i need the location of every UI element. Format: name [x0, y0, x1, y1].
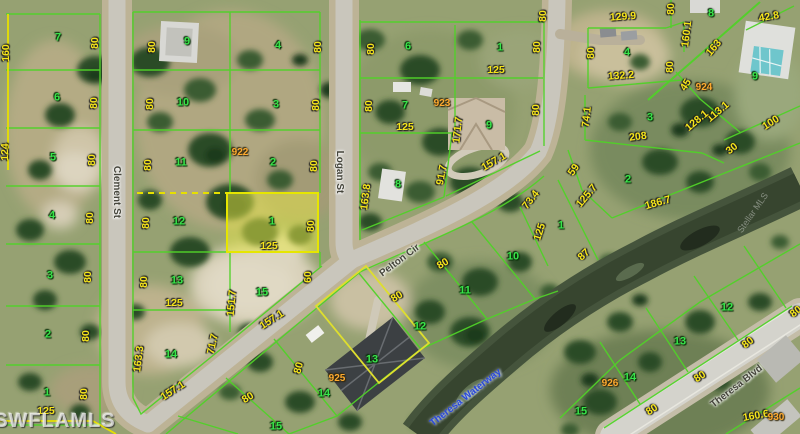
lot-number: 9 — [486, 121, 492, 132]
dimension-label: 91.7 — [435, 164, 449, 186]
lot-number: 4 — [49, 211, 55, 222]
dimension-label: 163.8 — [359, 183, 373, 210]
dimension-label: 59 — [566, 162, 581, 178]
dimension-label: 45 — [678, 77, 693, 92]
dimension-label: 42.8 — [758, 10, 780, 24]
parcel-id: 926 — [602, 379, 619, 389]
dimension-label: 30 — [724, 141, 740, 156]
dimension-label: 80 — [309, 160, 320, 172]
parcel-id: 923 — [434, 99, 451, 109]
lot-number: 3 — [647, 113, 653, 124]
dimension-label: 73.4 — [521, 189, 542, 212]
dimension-label: 80 — [147, 41, 158, 53]
lot-number: 15 — [575, 407, 587, 418]
lot-number: 12 — [414, 322, 426, 333]
lot-number: 1 — [558, 221, 564, 232]
dimension-label: 157.1 — [480, 151, 508, 173]
dimension-label: 80 — [85, 212, 96, 224]
dimension-label: 80 — [366, 43, 377, 55]
dimension-label: 80 — [364, 100, 375, 112]
dimension-label: 160.6 — [742, 409, 770, 424]
dimension-label: 151.7 — [226, 289, 239, 316]
lot-number: 2 — [45, 330, 51, 341]
lot-number: 6 — [54, 93, 60, 104]
lot-number: 9 — [184, 37, 190, 48]
parcel-id: 930 — [768, 413, 785, 423]
dimension-label: 74.1 — [581, 106, 594, 127]
lot-number: 1 — [269, 217, 275, 228]
dimension-label: 80 — [788, 304, 800, 319]
lot-number: 9 — [752, 72, 758, 83]
mls-parcel-map: 160124125808080808080808080808080125163.… — [0, 0, 800, 434]
lot-number: 13 — [674, 337, 686, 348]
dimension-label: 208 — [629, 131, 648, 144]
lot-number: 5 — [50, 153, 56, 164]
dimension-label: 125 — [396, 122, 414, 133]
dimension-label: 80 — [692, 369, 708, 384]
lot-number: 1 — [44, 388, 50, 399]
lot-number: 13 — [366, 355, 378, 366]
lot-number: 14 — [318, 389, 330, 400]
lot-number: 12 — [721, 303, 733, 314]
dimension-label: 125 — [260, 241, 278, 252]
dimension-label: 160.1 — [680, 20, 694, 47]
street-label: Theresa Waterway — [428, 367, 503, 429]
dimension-label: 80 — [90, 37, 101, 49]
dimension-label: 80 — [531, 104, 542, 116]
street-label: Theresa Blvd — [709, 364, 765, 411]
parcel-id: 925 — [329, 374, 346, 384]
dimension-label: 80 — [532, 41, 543, 53]
dimension-label: 157.1 — [159, 379, 187, 402]
lot-number: 14 — [165, 350, 177, 361]
lot-number: 3 — [47, 271, 53, 282]
lot-number: 13 — [171, 276, 183, 287]
lot-number: 7 — [55, 33, 61, 44]
lot-number: 2 — [625, 175, 631, 186]
map-label-layer: 160124125808080808080808080808080125163.… — [0, 0, 800, 434]
dimension-label: 125 — [487, 65, 505, 76]
lot-number: 4 — [624, 48, 630, 59]
dimension-label: 80 — [666, 3, 677, 15]
street-label: Logan St — [334, 151, 344, 194]
dimension-label: 157.1 — [258, 308, 286, 331]
lot-number: 14 — [624, 373, 636, 384]
dimension-label: 128.1 — [684, 109, 711, 134]
watermark: Stellar MLS — [736, 191, 770, 234]
dimension-label: 80 — [538, 10, 549, 22]
dimension-label: 163.3 — [132, 345, 146, 372]
dimension-label: 100 — [761, 114, 781, 132]
parcel-id: 924 — [696, 83, 713, 93]
dimension-label: 160 — [1, 44, 12, 62]
lot-number: 1 — [497, 43, 503, 54]
dimension-label: 80 — [83, 271, 94, 283]
dimension-label: 80 — [665, 61, 676, 73]
dimension-label: 80 — [586, 47, 597, 59]
dimension-label: 80 — [87, 154, 98, 166]
lot-number: 2 — [270, 158, 276, 169]
dimension-label: 80 — [644, 402, 660, 417]
dimension-label: 80 — [79, 388, 90, 400]
lot-number: 6 — [405, 42, 411, 53]
dimension-label: 80 — [389, 289, 404, 304]
dimension-label: 113.1 — [705, 100, 731, 125]
dimension-label: 87 — [576, 247, 592, 263]
lot-number: 15 — [270, 422, 282, 433]
lot-number: 7 — [402, 101, 408, 112]
dimension-label: 80 — [292, 361, 305, 375]
dimension-label: 129.9 — [610, 11, 637, 23]
dimension-label: 60 — [303, 271, 314, 283]
street-label: Clement St — [111, 166, 121, 218]
dimension-label: 80 — [306, 220, 317, 232]
lot-number: 11 — [175, 158, 187, 169]
lot-number: 10 — [177, 98, 189, 109]
dimension-label: 80 — [145, 98, 156, 110]
dimension-label: 125.7 — [575, 183, 600, 210]
dimension-label: 125 — [165, 298, 183, 309]
dimension-label: 80 — [143, 159, 154, 171]
dimension-label: 80 — [139, 276, 150, 288]
lot-number: 15 — [256, 288, 268, 299]
dimension-label: 80 — [311, 99, 322, 111]
dimension-label: 80 — [435, 256, 450, 271]
lot-number: 11 — [459, 286, 471, 297]
dimension-label: 80 — [240, 390, 255, 405]
dimension-label: 186.7 — [644, 194, 672, 211]
dimension-label: 80 — [89, 97, 100, 109]
lot-number: 4 — [275, 41, 281, 52]
watermark: SWFLAMLS — [0, 411, 116, 431]
lot-number: 10 — [507, 252, 519, 263]
dimension-label: 80 — [740, 335, 756, 350]
dimension-label: 125 — [532, 222, 547, 242]
street-label: Pelton Cir — [378, 243, 422, 279]
lot-number: 8 — [708, 9, 714, 20]
dimension-label: 163 — [704, 38, 723, 58]
dimension-label: 171.7 — [451, 116, 464, 143]
lot-number: 8 — [395, 180, 401, 191]
dimension-label: 71.7 — [206, 333, 221, 355]
parcel-id: 922 — [232, 148, 249, 158]
dimension-label: 80 — [313, 41, 324, 53]
lot-number: 12 — [173, 217, 185, 228]
lot-number: 3 — [273, 100, 279, 111]
dimension-label: 80 — [141, 217, 152, 229]
dimension-label: 132.2 — [608, 70, 635, 82]
dimension-label: 80 — [81, 330, 92, 342]
dimension-label: 124 — [0, 143, 10, 161]
